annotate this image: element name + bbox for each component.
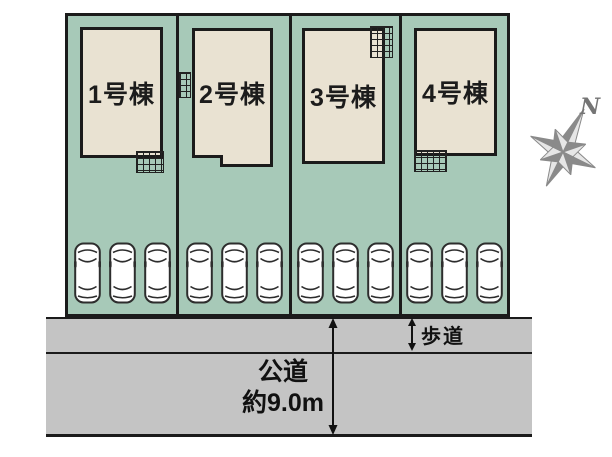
building-2: [192, 28, 273, 167]
site-plan: 1号棟 2号棟 3号棟 4号棟: [0, 0, 612, 457]
site-area: 1号棟 2号棟 3号棟 4号棟: [65, 13, 510, 317]
car-icon: [406, 242, 433, 304]
hatch-symbol-lot1: [136, 151, 164, 173]
car-icon: [144, 242, 171, 304]
road-label: 公道 約9.0m: [237, 357, 329, 419]
road-width-label: 約9.0m: [237, 388, 329, 419]
sidewalk-label: 歩道: [421, 320, 465, 349]
hatch-symbol-lot3: [370, 26, 393, 58]
hatch-symbol-lot4: [414, 150, 447, 172]
building-1: 1号棟: [80, 27, 163, 158]
sidewalk-width-arrow: [404, 318, 420, 351]
building-4-label: 4号棟: [422, 74, 489, 110]
parking-row-lot3: [292, 242, 399, 304]
road-name-label: 公道: [237, 357, 329, 388]
building-3-label: 3号棟: [310, 78, 377, 114]
compass-rose-icon: N: [520, 88, 612, 200]
parking-row-lot1: [68, 242, 176, 304]
car-icon: [441, 242, 468, 304]
parking-row-lot2: [179, 242, 289, 304]
car-icon: [109, 242, 136, 304]
building-4: 4号棟: [414, 28, 497, 156]
car-icon: [297, 242, 324, 304]
car-icon: [74, 242, 101, 304]
car-icon: [367, 242, 394, 304]
car-icon: [221, 242, 248, 304]
building-1-label: 1号棟: [88, 75, 155, 111]
hatch-symbol-lot2: [179, 72, 191, 98]
car-icon: [186, 242, 213, 304]
compass-n-label: N: [579, 94, 601, 120]
car-icon: [332, 242, 359, 304]
parking-row-lot4: [402, 242, 507, 304]
car-icon: [256, 242, 283, 304]
car-icon: [476, 242, 503, 304]
